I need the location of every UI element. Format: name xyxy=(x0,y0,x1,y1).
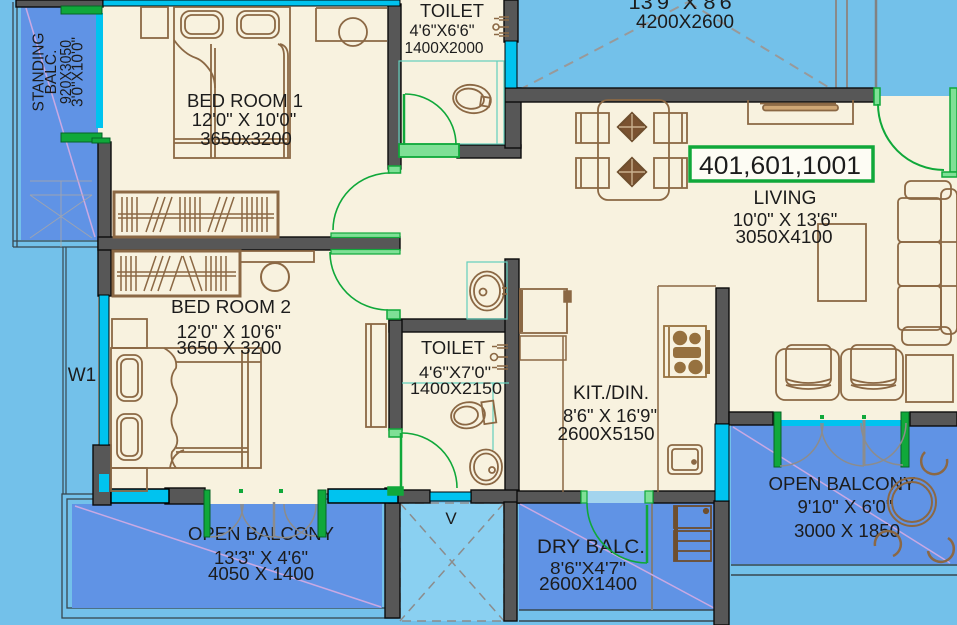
svg-text:1400X2150: 1400X2150 xyxy=(410,379,502,398)
svg-text:W1: W1 xyxy=(68,365,97,386)
svg-text:3650 X 3200: 3650 X 3200 xyxy=(177,337,282,358)
svg-text:KIT./DIN.: KIT./DIN. xyxy=(573,383,649,404)
svg-text:DRY BALC.: DRY BALC. xyxy=(537,537,645,558)
svg-text:2600X5150: 2600X5150 xyxy=(558,423,655,444)
svg-text:9'10" X 6'0": 9'10" X 6'0" xyxy=(798,496,893,517)
svg-text:LIVING: LIVING xyxy=(754,187,817,209)
svg-text:4050 X 1400: 4050 X 1400 xyxy=(208,563,314,584)
svg-text:3'0"X10'0": 3'0"X10'0" xyxy=(70,37,87,107)
svg-text:1400X2000: 1400X2000 xyxy=(405,40,484,57)
svg-text:TOILET: TOILET xyxy=(421,338,485,358)
svg-text:OPEN BALCONY: OPEN BALCONY xyxy=(769,473,916,494)
svg-text:BED ROOM 2: BED ROOM 2 xyxy=(171,296,291,317)
svg-text:3050X4100: 3050X4100 xyxy=(736,226,833,247)
svg-text:401,601,1001: 401,601,1001 xyxy=(699,152,861,180)
svg-text:4200X2600: 4200X2600 xyxy=(636,12,734,33)
svg-text:4'6"X6'6": 4'6"X6'6" xyxy=(410,22,475,40)
svg-text:3650x3200: 3650x3200 xyxy=(200,128,292,149)
svg-text:12'0" X 10'0": 12'0" X 10'0" xyxy=(192,109,297,130)
svg-text:V: V xyxy=(445,509,457,528)
svg-text:TOILET: TOILET xyxy=(420,1,484,21)
svg-text:2600X1400: 2600X1400 xyxy=(539,574,637,594)
svg-text:BED ROOM 1: BED ROOM 1 xyxy=(187,90,303,111)
